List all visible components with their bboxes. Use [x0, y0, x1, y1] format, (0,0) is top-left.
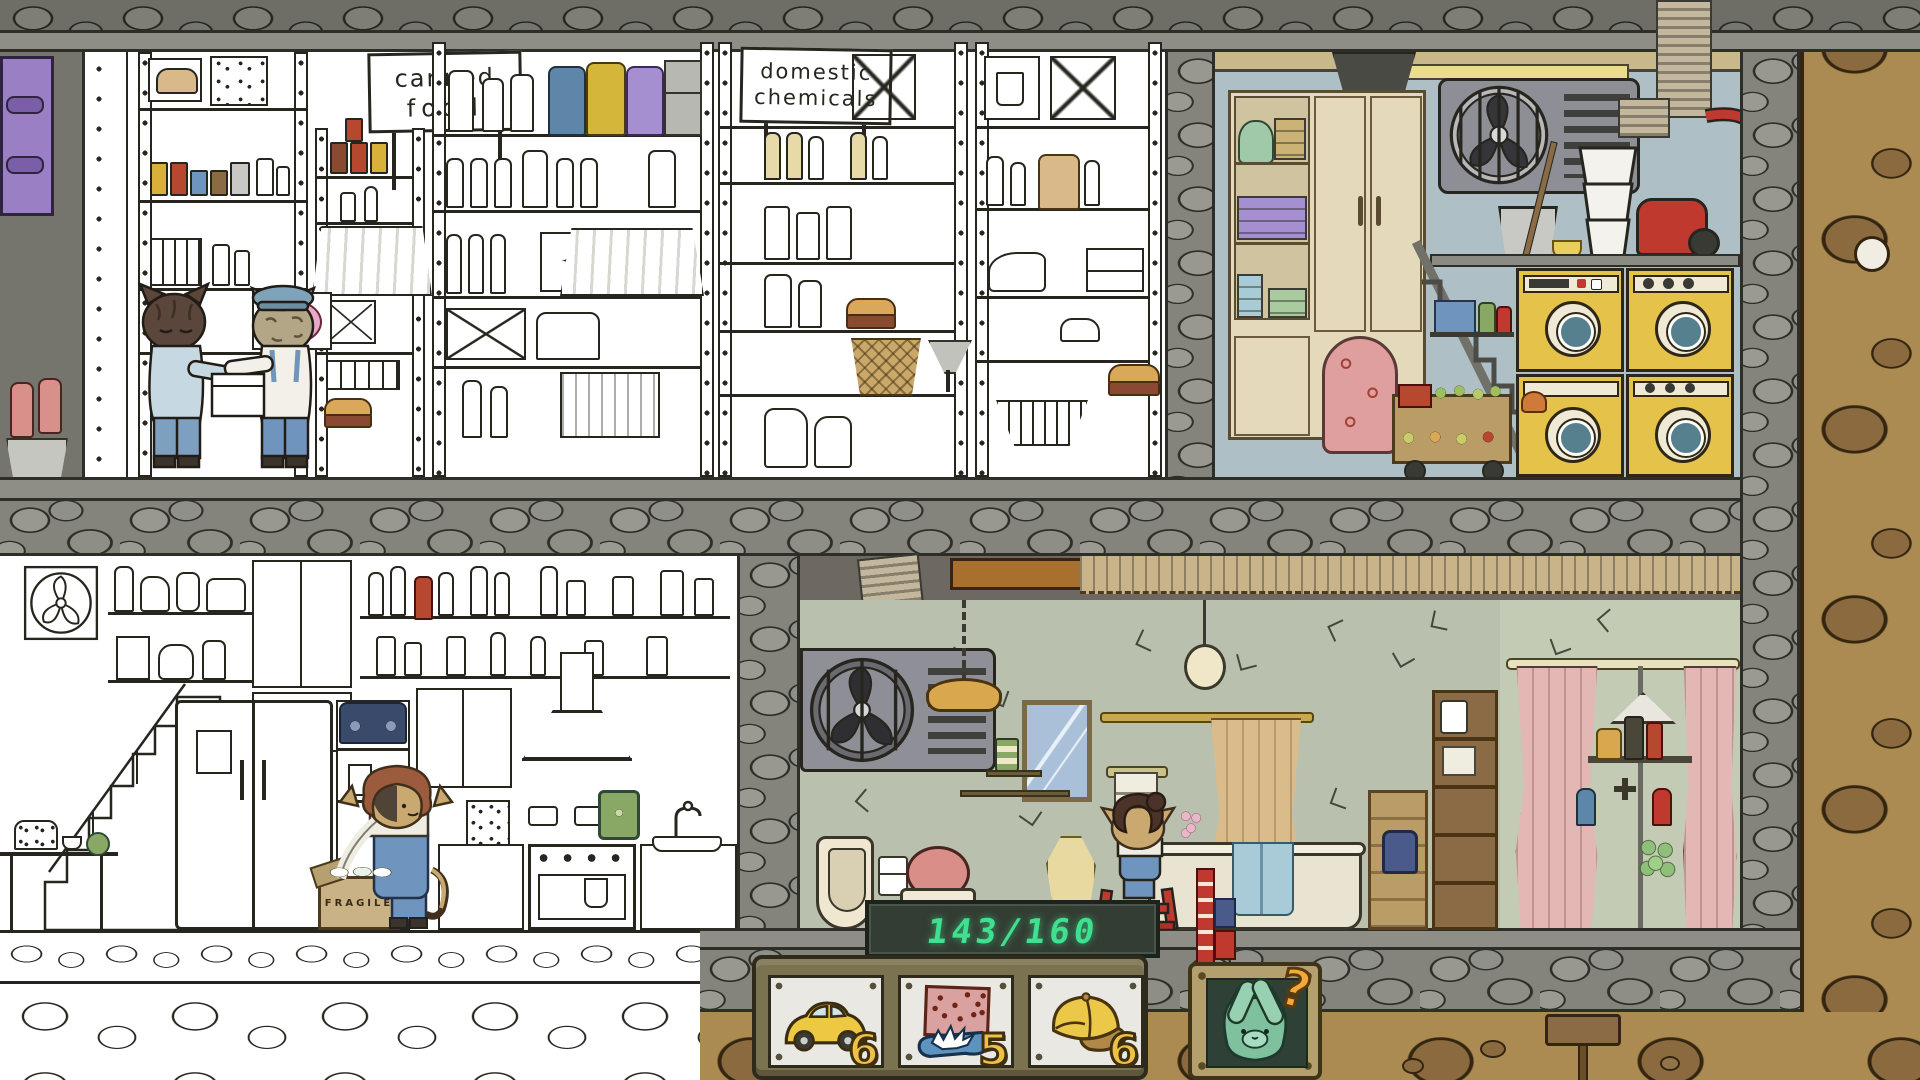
shelf-upright — [718, 42, 732, 477]
ironing-board[interactable] — [1322, 336, 1398, 454]
washing-machine[interactable] — [1626, 374, 1734, 477]
washer-door — [1545, 301, 1601, 357]
canned-food-tin[interactable] — [210, 170, 228, 196]
bottle-outline[interactable] — [1010, 162, 1026, 206]
cap-count: 6 — [1108, 1029, 1139, 1073]
kitchen-shelf-board — [360, 676, 730, 679]
parcel-picture[interactable] — [446, 308, 526, 360]
bathroom-ac-fan-icon — [806, 654, 918, 766]
fridge-handle — [262, 760, 266, 800]
green-watering-can[interactable] — [598, 790, 640, 840]
canned-food-tin[interactable] — [370, 142, 388, 174]
jar-outline[interactable] — [256, 158, 274, 196]
stone-pillar — [737, 556, 800, 930]
bottle-outline[interactable] — [390, 566, 406, 616]
shelf-upright — [432, 42, 446, 477]
closet-lower-door[interactable] — [1234, 336, 1310, 436]
storeroom-metal-wall — [95, 60, 103, 470]
washing-machine[interactable] — [1626, 268, 1734, 372]
jug-outline[interactable] — [510, 74, 534, 132]
car-count: 6 — [848, 1029, 879, 1073]
shelf-towel-white — [1442, 746, 1476, 776]
shower-valve-cross[interactable] — [1614, 778, 1636, 800]
washer-knob — [1683, 278, 1694, 289]
iron-outline[interactable] — [988, 252, 1046, 292]
bottle-outline[interactable] — [364, 186, 378, 222]
boombox-radio[interactable] — [339, 702, 407, 744]
bottle-outline[interactable] — [1084, 160, 1100, 206]
hidden-object-game-scene: canned food ✦ domestic — [0, 0, 1920, 1080]
fruit-cart-grapes — [1432, 382, 1504, 404]
chest-outline[interactable] — [536, 312, 600, 360]
shelf-green-bottle[interactable] — [1478, 302, 1496, 334]
storeroom-cats-carrying-box[interactable] — [112, 282, 352, 477]
folded-cloth-stack-tan[interactable] — [1274, 118, 1306, 160]
envelope-picture[interactable] — [852, 54, 916, 120]
bathroom-shelf-board — [960, 790, 1070, 797]
books-row[interactable] — [150, 238, 202, 286]
shelf-board — [977, 126, 1148, 129]
gray-box-stack[interactable] — [664, 60, 702, 136]
toilet-paper-roll[interactable] — [1440, 700, 1468, 734]
canister-outline[interactable] — [826, 206, 852, 260]
glass-cabinet-divider — [300, 562, 302, 686]
sink-faucet-outline — [668, 800, 708, 840]
mug-icon — [996, 72, 1024, 106]
handheld-sprayer-blue[interactable] — [1576, 788, 1596, 826]
spray-bottle-outline[interactable] — [446, 158, 464, 208]
shelf-upright — [412, 128, 425, 477]
washing-machine[interactable] — [1516, 268, 1624, 372]
green-snow-globe[interactable] — [86, 832, 110, 856]
canned-food-tin[interactable] — [350, 142, 368, 174]
shampoo-amber[interactable] — [1596, 728, 1622, 760]
ceiling-vent-box[interactable] — [1332, 52, 1416, 94]
shelf-board — [977, 360, 1148, 363]
jar-outline[interactable] — [646, 636, 668, 676]
cabinet-split — [462, 690, 464, 786]
jar-outline[interactable] — [566, 580, 586, 616]
kitchen-shelf-board — [108, 612, 258, 615]
shelf-blue-box[interactable] — [1434, 300, 1476, 334]
shelf-upright — [1148, 42, 1162, 477]
metal-bucket[interactable] — [6, 438, 68, 480]
blue-bath-towel[interactable] — [1232, 842, 1294, 916]
wicker-basket[interactable] — [848, 338, 924, 396]
spray-bottle-outline[interactable] — [580, 158, 598, 208]
shelf-board — [434, 366, 700, 369]
orange-mitt[interactable] — [1521, 391, 1547, 413]
jug-outline[interactable] — [202, 640, 226, 680]
milk-bottle-amber[interactable] — [850, 132, 867, 180]
basement-stone-band-left — [0, 936, 700, 978]
shelf-board — [140, 200, 306, 203]
fruit-cart-red-box — [1398, 384, 1432, 408]
shampoo-red[interactable] — [1646, 722, 1663, 760]
closet-shelf-board — [1234, 242, 1310, 245]
bottle-outline[interactable] — [438, 572, 454, 616]
purple-panel[interactable] — [0, 56, 54, 216]
sack-outline[interactable] — [814, 416, 852, 468]
detergent-jug-yellow[interactable] — [586, 62, 626, 136]
iron-green[interactable] — [1238, 120, 1274, 164]
sink-counter[interactable] — [640, 844, 737, 930]
striped-cup[interactable] — [995, 738, 1019, 774]
bathroom-shelf-board — [986, 770, 1042, 777]
oven-door-outline — [538, 874, 626, 920]
wall-socket-outline — [528, 806, 558, 826]
jar-outline[interactable] — [276, 166, 290, 196]
carried-box — [212, 374, 264, 416]
jar-outline[interactable] — [612, 576, 634, 616]
grinder-outline[interactable] — [176, 572, 200, 612]
jar-outline[interactable] — [340, 192, 356, 222]
wooden-sign-in-dirt[interactable] — [1545, 1014, 1621, 1046]
washer-knob — [1645, 383, 1655, 393]
shelf-board — [720, 262, 954, 265]
shelf-board — [720, 182, 954, 185]
milk-bottle-outline[interactable] — [872, 136, 888, 180]
canister-outline[interactable] — [764, 206, 790, 260]
bottle-outline[interactable] — [494, 572, 510, 616]
squeeze-bottle-outline[interactable] — [468, 234, 484, 294]
rubber-glove[interactable] — [10, 382, 34, 438]
top-stone-strip — [0, 0, 1920, 30]
shelf-upright — [700, 42, 714, 477]
washer-door-glass — [1558, 420, 1594, 456]
air-duct-elbow — [1618, 98, 1670, 138]
jar-outline[interactable] — [694, 578, 714, 616]
speckled-poster[interactable] — [210, 56, 268, 106]
canned-food-tin[interactable] — [330, 142, 348, 174]
jar-outline[interactable] — [234, 250, 250, 286]
canned-food-tin[interactable] — [150, 162, 168, 196]
milk-bottle-amber[interactable] — [764, 132, 781, 180]
shelf-board — [720, 330, 954, 333]
funnel-stem — [946, 370, 950, 392]
washer-door-glass — [1668, 420, 1704, 456]
fragile-box-dishes — [326, 864, 392, 878]
detergent-jug-blue[interactable] — [548, 66, 586, 136]
bottle-outline[interactable] — [462, 380, 482, 438]
pebble — [1402, 1058, 1424, 1074]
handheld-sprayer-red[interactable] — [1652, 788, 1672, 826]
jug-outline[interactable] — [764, 274, 792, 328]
shelf-red-bottle[interactable] — [1496, 306, 1512, 334]
wood-strip-curtain[interactable] — [560, 372, 660, 438]
globe-lamp[interactable] — [1184, 644, 1226, 690]
fragile-label: FRAGILE — [324, 898, 394, 909]
shelf-board — [434, 210, 700, 213]
pendant-lamp-shade[interactable] — [926, 678, 1002, 712]
washer-door-glass — [1668, 314, 1704, 350]
jar-outline[interactable] — [212, 244, 230, 286]
mid-floor-beam — [0, 477, 1800, 501]
bottle-outline[interactable] — [490, 632, 506, 676]
kettle-outline[interactable] — [158, 644, 194, 680]
purple-panel-slot — [6, 156, 44, 174]
bathroom-cat-head — [1090, 790, 1186, 850]
canister-outline[interactable] — [796, 212, 820, 260]
shampoo-dark[interactable] — [1624, 716, 1644, 760]
washer-knob — [1643, 278, 1654, 289]
washer-button-red — [1577, 279, 1586, 288]
envelope-seal-picture[interactable] — [1050, 56, 1116, 120]
stall-awning — [560, 228, 704, 296]
earth-cross-section-right — [1800, 0, 1920, 1080]
shelf-board — [434, 296, 700, 299]
sack-outline[interactable] — [764, 408, 808, 468]
pebble — [1660, 1056, 1680, 1071]
mixer-outline[interactable] — [140, 576, 170, 612]
spray-bottle-outline[interactable] — [556, 158, 574, 208]
jug-outline[interactable] — [648, 150, 676, 208]
hamburger-patty — [1108, 381, 1160, 396]
shelf-board — [140, 108, 306, 111]
jug-outline[interactable] — [522, 150, 548, 208]
ceiling-brush-fringe — [1080, 556, 1740, 594]
bottle-outline[interactable] — [470, 566, 488, 616]
box-stack-outline[interactable] — [1086, 248, 1144, 292]
detergent-jug-purple[interactable] — [626, 66, 664, 136]
spray-bottle-outline[interactable] — [470, 158, 488, 208]
basement-line — [0, 981, 700, 984]
bottle-outline[interactable] — [540, 566, 558, 616]
stove-knobs — [534, 852, 630, 864]
canned-food-tin[interactable] — [345, 118, 363, 142]
tray-slot-cap[interactable]: 6 — [1028, 975, 1144, 1068]
washer-door — [1655, 407, 1711, 463]
bottle-outline[interactable] — [490, 386, 508, 438]
fridge-magnet-picture — [196, 730, 232, 774]
washer-button — [1591, 279, 1602, 290]
laundry-fan-icon — [1446, 82, 1552, 188]
hint-question-mark: ? — [1274, 961, 1316, 1019]
found-counter-value: 143/160 — [924, 912, 1101, 952]
baseball-in-dirt[interactable] — [1854, 236, 1890, 272]
tray-slot-towel[interactable]: 5 — [898, 975, 1014, 1068]
coffee-maker-outline[interactable] — [116, 636, 150, 680]
jar-outline[interactable] — [376, 636, 396, 676]
kitchen-scale-outline[interactable] — [206, 578, 246, 612]
canned-food-tin[interactable] — [190, 170, 208, 196]
amber-jug[interactable] — [1038, 154, 1080, 210]
hood-bottom — [522, 758, 632, 761]
table-leg — [10, 856, 13, 930]
squeeze-bottle-outline[interactable] — [490, 234, 506, 294]
fruit-cart-lower-fruits — [1398, 428, 1504, 448]
shelf-board — [317, 176, 414, 179]
washer-panel-display — [1529, 279, 1569, 288]
bucket-stack-white[interactable] — [1572, 144, 1644, 258]
jar-outline[interactable] — [660, 570, 684, 616]
table-leg — [100, 856, 103, 930]
closet-shelf-board — [1234, 162, 1310, 165]
washer-door — [1545, 407, 1601, 463]
rubber-glove[interactable] — [38, 378, 62, 434]
shelf-board — [720, 394, 954, 397]
small-shelf-board — [1430, 332, 1514, 337]
closet-door-handle — [1358, 196, 1363, 226]
squeeze-bottle-outline[interactable] — [446, 234, 462, 294]
kitchen-wall-fan-outline[interactable] — [22, 564, 100, 642]
purple-panel-slot — [6, 96, 44, 114]
toy-car-outline[interactable] — [1060, 318, 1100, 342]
fridge-handle — [240, 760, 244, 800]
basement-stones-left — [0, 987, 700, 1080]
washer-knob — [1665, 383, 1675, 393]
shower-curtain-right[interactable] — [1682, 666, 1738, 930]
pipe-stack-blue — [1214, 898, 1236, 928]
washer-door-glass — [1558, 314, 1594, 350]
jug-outline[interactable] — [482, 78, 504, 132]
spray-bottle-outline[interactable] — [494, 158, 512, 208]
bottle-outline[interactable] — [986, 156, 1004, 206]
washing-machine[interactable] — [1516, 374, 1624, 477]
milk-bottle-amber[interactable] — [786, 132, 803, 180]
jar-outline[interactable] — [446, 636, 466, 676]
teacup-outline[interactable] — [62, 836, 82, 850]
bread-loaf-icon — [156, 68, 198, 94]
pendant-lamp-chain — [962, 600, 966, 682]
bathroom-mirror[interactable] — [1022, 700, 1092, 802]
cake-stand-outline[interactable] — [14, 820, 58, 850]
pebble — [1480, 1040, 1506, 1058]
shelf-upright — [954, 42, 968, 477]
bottle-outline[interactable] — [368, 572, 384, 616]
shelf-board — [720, 126, 954, 129]
jug-outline[interactable] — [798, 280, 822, 328]
washer-knob — [1663, 278, 1674, 289]
jar-outline[interactable] — [404, 642, 422, 676]
green-loofah[interactable] — [1634, 832, 1682, 884]
pipe-stack-red2 — [1214, 930, 1236, 960]
pipe-stack-red — [1196, 868, 1215, 964]
purple-towels[interactable] — [1237, 196, 1307, 240]
wall-scratch — [1430, 610, 1450, 630]
mid-floor-stones — [0, 501, 1800, 556]
found-counter-board: 143/160 — [865, 900, 1160, 958]
tray-slot-car[interactable]: 6 — [768, 975, 884, 1068]
globe-lamp-cord — [1203, 600, 1206, 648]
stone-pillar — [1165, 52, 1215, 477]
fridge-door-split — [252, 702, 255, 928]
red-bottle[interactable] — [414, 576, 433, 620]
jug-outline[interactable] — [448, 70, 474, 132]
canned-food-tin[interactable] — [230, 162, 250, 196]
range-hood-outline[interactable] — [560, 652, 594, 712]
oven-towel-outline — [584, 878, 608, 908]
stone-pillar — [1740, 52, 1800, 1012]
towel-count: 5 — [978, 1029, 1009, 1073]
hamburger-patty — [846, 314, 896, 329]
urinal-inner — [828, 848, 866, 912]
milk-bottle-outline[interactable] — [808, 136, 824, 180]
blue-jug[interactable] — [1382, 830, 1418, 874]
column-shelf-board — [338, 748, 408, 751]
closet-door-handle — [1376, 196, 1381, 226]
canned-food-tin[interactable] — [170, 162, 188, 196]
washer-knob — [1685, 383, 1695, 393]
washer-door — [1655, 301, 1711, 357]
wooden-sign-stick — [1578, 1044, 1588, 1080]
blender-outline[interactable] — [114, 566, 134, 612]
bottle-outline[interactable] — [530, 636, 546, 676]
shelf-board — [977, 296, 1148, 299]
hint-button[interactable]: ? — [1188, 962, 1322, 1080]
blue-towel-stack[interactable] — [1237, 274, 1263, 318]
green-towel[interactable] — [1268, 288, 1307, 318]
shelf-board — [317, 222, 414, 225]
glass-cabinet[interactable] — [252, 560, 352, 688]
